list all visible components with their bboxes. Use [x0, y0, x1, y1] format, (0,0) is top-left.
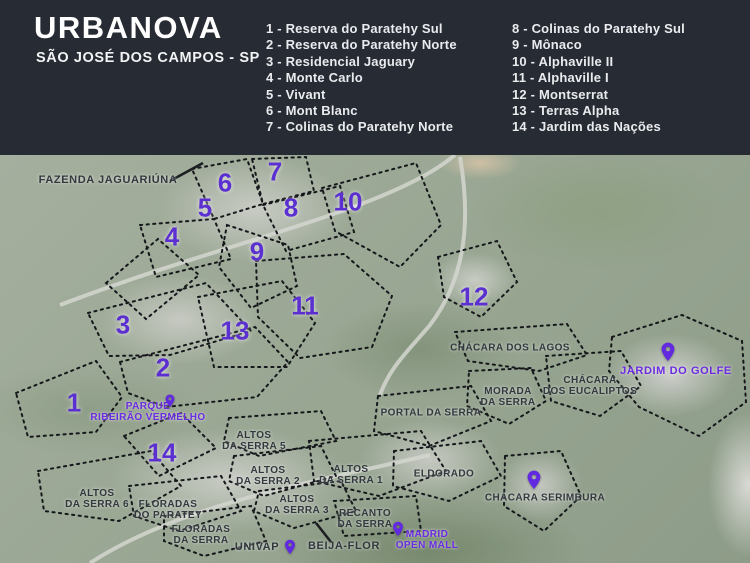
pin-madrid-open-mall-icon — [390, 520, 407, 537]
pin-univap-icon — [282, 538, 299, 555]
page-subtitle: SÃO JOSÉ DOS CAMPOS - SP — [36, 50, 260, 66]
label-line: DA SERRA — [337, 520, 392, 531]
legend-item-13: 13 - Terras Alpha — [512, 103, 685, 119]
label-altos-da-serra-6: ALTOS DA SERRA 6 — [65, 489, 129, 511]
label-line: DA SERRA 6 — [65, 500, 129, 511]
label-line: DOS EUCALIPTOS — [543, 387, 637, 398]
map-number-1: 1 — [67, 388, 81, 419]
legend-column-2: 8 - Colinas do Paratehy Sul 9 - Mônaco 1… — [512, 21, 685, 136]
map-number-10: 10 — [334, 187, 363, 218]
legend-item-10: 10 - Alphaville II — [512, 54, 685, 70]
label-line: DA SERRA 3 — [265, 506, 329, 517]
label-line: DA SERRA 1 — [319, 476, 383, 487]
outline-chacara-serimbura — [504, 451, 581, 531]
map-number-8: 8 — [284, 193, 298, 224]
label-line: DA SERRA — [480, 398, 535, 409]
outline-vivant — [140, 219, 231, 277]
legend-item-3: 3 - Residencial Jaguary — [266, 54, 457, 70]
label-jardim-do-golfe: JARDIM DO GOLFE — [620, 366, 732, 378]
label-line: DO PARATEY — [134, 511, 202, 522]
map-number-14: 14 — [148, 438, 177, 469]
legend-item-1: 1 - Reserva do Paratehy Sul — [266, 21, 457, 37]
label-portal-da-serra: PORTAL DA SERRA — [381, 409, 482, 420]
legend-item-2: 2 - Reserva do Paratehy Norte — [266, 37, 457, 53]
label-parque-ribeirao-vermelho: PARQUE RIBEIRÃO VERMELHO — [90, 402, 205, 424]
label-line: DA SERRA 2 — [236, 477, 300, 488]
page-title: URBANOVA — [34, 10, 223, 46]
map-number-7: 7 — [268, 157, 282, 188]
label-line: DA SERRA 5 — [222, 442, 286, 453]
label-recanto-da-serra: RECANTO DA SERRA — [337, 509, 392, 531]
legend-item-14: 14 - Jardim das Nações — [512, 119, 685, 135]
map-number-6: 6 — [218, 168, 232, 199]
label-line: OPEN MALL — [396, 541, 459, 552]
label-altos-da-serra-3: ALTOS DA SERRA 3 — [265, 495, 329, 517]
map-number-5: 5 — [198, 193, 212, 224]
legend-item-6: 6 - Mont Blanc — [266, 103, 457, 119]
label-univap: UNIVAP — [235, 542, 279, 554]
label-line: DA SERRA — [172, 536, 231, 547]
label-chacara-dos-lagos: CHÁCARA DOS LAGOS — [450, 344, 570, 355]
outline-alphaville-1 — [256, 254, 392, 358]
map-number-4: 4 — [165, 222, 179, 253]
legend-item-9: 9 - Mônaco — [512, 37, 685, 53]
label-chacara-serimbura: CHÁCARA SERIMBURA — [485, 494, 605, 505]
legend-item-11: 11 - Alphaville I — [512, 70, 685, 86]
legend-item-7: 7 - Colinas do Paratehy Norte — [266, 119, 457, 135]
map-number-13: 13 — [221, 316, 250, 347]
header-bar: URBANOVA SÃO JOSÉ DOS CAMPOS - SP 1 - Re… — [0, 0, 750, 155]
map-number-2: 2 — [156, 353, 170, 384]
map-number-12: 12 — [460, 282, 489, 313]
map-number-3: 3 — [116, 310, 130, 341]
label-altos-da-serra-1: ALTOS DA SERRA 1 — [319, 465, 383, 487]
urbanova-map-page: URBANOVA SÃO JOSÉ DOS CAMPOS - SP 1 - Re… — [0, 0, 750, 563]
pin-jardim-do-golfe-icon — [657, 341, 679, 363]
label-beija-flor: BEIJA-FLOR — [308, 541, 380, 553]
satellite-map: 1 2 3 4 5 6 7 8 9 10 11 12 13 14 FAZENDA… — [0, 155, 750, 563]
label-altos-da-serra-5: ALTOS DA SERRA 5 — [222, 431, 286, 453]
legend-item-5: 5 - Vivant — [266, 87, 457, 103]
pin-parque-ribeirao-vermelho-icon — [163, 393, 178, 408]
map-number-11: 11 — [291, 291, 319, 322]
label-floradas-da-serra: FLORADAS DA SERRA — [172, 525, 231, 547]
label-line: RIBEIRÃO VERMELHO — [90, 413, 205, 424]
legend-item-12: 12 - Montserrat — [512, 87, 685, 103]
outline-reserva-paratehy-norte — [120, 327, 288, 407]
label-morada-da-serra: MORADA DA SERRA — [480, 387, 535, 409]
legend-item-8: 8 - Colinas do Paratehy Sul — [512, 21, 685, 37]
map-number-9: 9 — [250, 237, 264, 268]
label-fazenda-jaguariuna: FAZENDA JAGUARIÚNA — [39, 175, 178, 187]
label-altos-da-serra-2: ALTOS DA SERRA 2 — [236, 466, 300, 488]
label-floradas-do-paratey: FLORADAS DO PARATEY — [134, 500, 202, 522]
pin-chacara-serimbura-icon — [523, 469, 545, 491]
outline-monte-carlo — [106, 239, 199, 319]
legend-item-4: 4 - Monte Carlo — [266, 70, 457, 86]
label-eldorado: ELDORADO — [414, 470, 474, 481]
legend-column-1: 1 - Reserva do Paratehy Sul 2 - Reserva … — [266, 21, 457, 136]
label-chacara-dos-eucaliptos: CHÁCARA DOS EUCALIPTOS — [543, 376, 637, 398]
